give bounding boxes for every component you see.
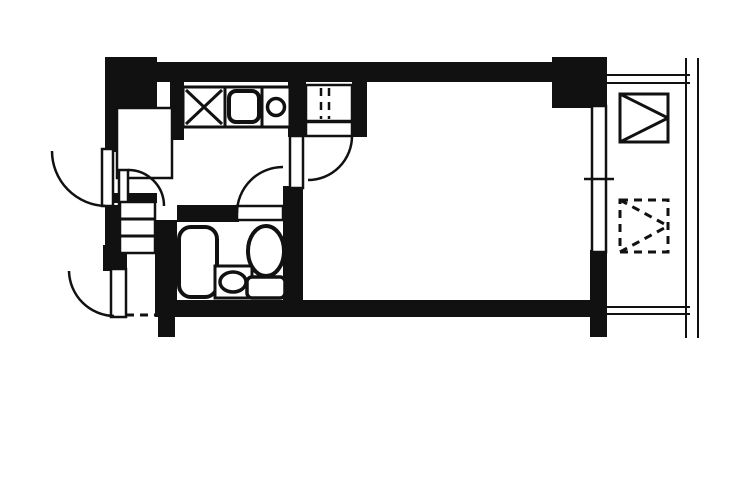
wall-top-right-block (552, 57, 607, 108)
wall-left-mid (105, 205, 120, 247)
pipe-space-storage (117, 108, 172, 178)
thin-partition-wall (290, 136, 303, 188)
washbasin-bowl (220, 272, 246, 292)
room-door-swing (308, 136, 352, 180)
shoe-cabinet (120, 202, 155, 253)
floor-plan-canvas (0, 0, 750, 500)
toilet-tank (247, 277, 285, 298)
service-door-swing (52, 151, 106, 206)
wall-bottom-left-stub (158, 317, 175, 337)
wall-closet-right-column (352, 80, 367, 137)
wall-bottom (155, 300, 607, 317)
kitchen-sink (229, 91, 259, 122)
wall-bath-top (177, 205, 239, 222)
entry-door-leaf (111, 269, 126, 317)
room-door-leaf (306, 122, 352, 136)
bathroom-door-leaf (237, 206, 283, 220)
ac-space-diagonal-2 (620, 226, 668, 252)
floor-plan-screenshot (0, 0, 750, 500)
bathtub (179, 227, 217, 297)
stove-burner (268, 99, 285, 116)
entry-door-swing (69, 271, 114, 316)
balcony-ac-space (620, 200, 668, 252)
ac-space-diagonal-1 (620, 200, 668, 226)
service-door-leaf (102, 149, 113, 206)
wall-window-right-column (590, 250, 607, 337)
wall-bath-right (283, 186, 303, 317)
toilet-bowl (248, 226, 284, 276)
wall-top (105, 62, 607, 82)
balcony-unit-box (620, 94, 668, 142)
